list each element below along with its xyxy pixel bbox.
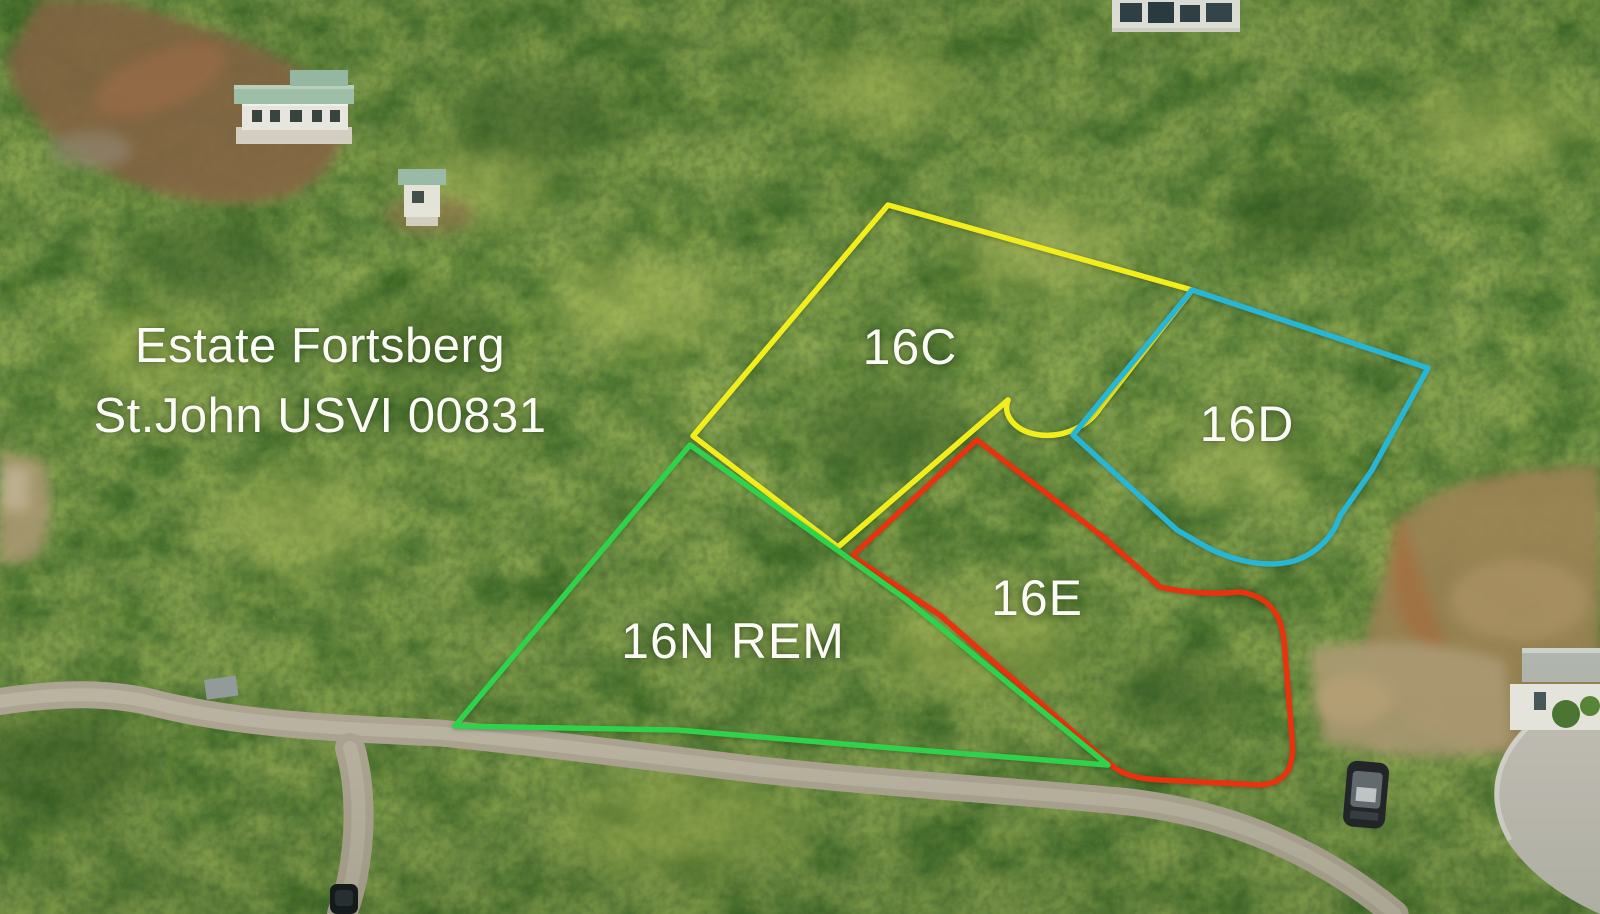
- parcel-label-16D: 16D: [1200, 395, 1295, 453]
- parcel-outlines: [455, 205, 1428, 785]
- parcel-label-16E: 16E: [991, 569, 1083, 627]
- aerial-photo: Estate Fortsberg St.John USVI 00831 16C …: [0, 0, 1600, 914]
- parcel-boundary-16C: [693, 205, 1192, 547]
- parcel-label-16C: 16C: [863, 318, 958, 376]
- location-label-line2: St.John USVI 00831: [70, 382, 570, 452]
- location-label: Estate Fortsberg St.John USVI 00831: [70, 312, 570, 451]
- parcel-label-16N-REM: 16N REM: [621, 612, 845, 670]
- parcel-outlines-layer: [0, 0, 1600, 914]
- location-label-line1: Estate Fortsberg: [70, 312, 570, 382]
